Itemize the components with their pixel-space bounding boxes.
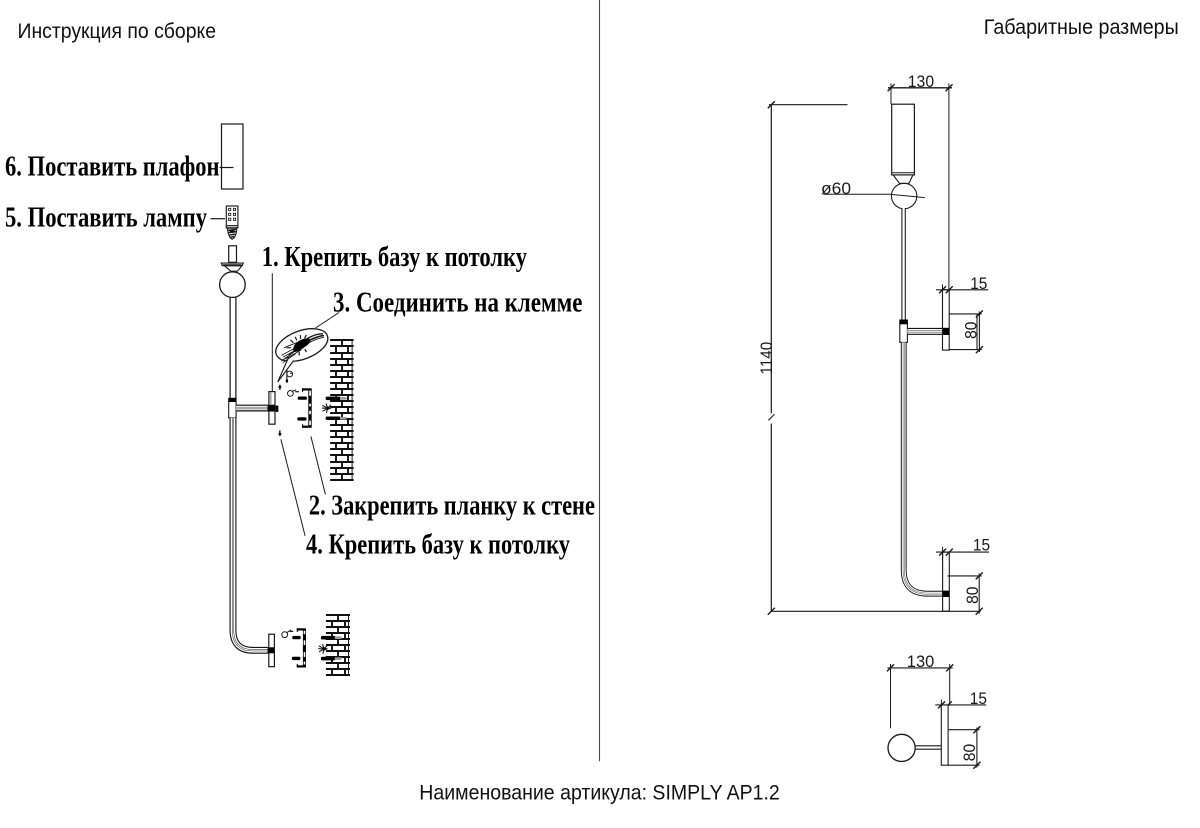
svg-text:ø60: ø60 <box>821 179 851 198</box>
svg-text:6. Поставить плафон: 6. Поставить плафон <box>5 152 220 183</box>
svg-text:80: 80 <box>963 587 982 604</box>
svg-text:Инструкция по сборке: Инструкция по сборке <box>18 20 217 43</box>
svg-text:2. Закрепить планку к стене: 2. Закрепить планку к стене <box>309 491 595 522</box>
svg-text:15: 15 <box>973 536 990 555</box>
svg-text:Габаритные размеры: Габаритные размеры <box>984 16 1179 39</box>
svg-text:130: 130 <box>908 72 934 91</box>
svg-text:130: 130 <box>907 652 935 671</box>
svg-text:Наименование артикула: SIMPLY: Наименование артикула: SIMPLY AP1.2 <box>419 782 780 805</box>
svg-text:4. Крепить базу к потолку: 4. Крепить базу к потолку <box>306 530 570 561</box>
svg-text:15: 15 <box>970 689 987 708</box>
svg-text:80: 80 <box>961 322 980 339</box>
svg-text:5. Поставить лампу: 5. Поставить лампу <box>5 203 207 234</box>
svg-text:1. Крепить базу к потолку: 1. Крепить базу к потолку <box>262 242 527 273</box>
svg-text:3. Соединить на клемме: 3. Соединить на клемме <box>333 287 582 318</box>
svg-text:15: 15 <box>970 274 987 293</box>
svg-text:80: 80 <box>960 744 979 761</box>
svg-text:1140: 1140 <box>757 342 776 375</box>
